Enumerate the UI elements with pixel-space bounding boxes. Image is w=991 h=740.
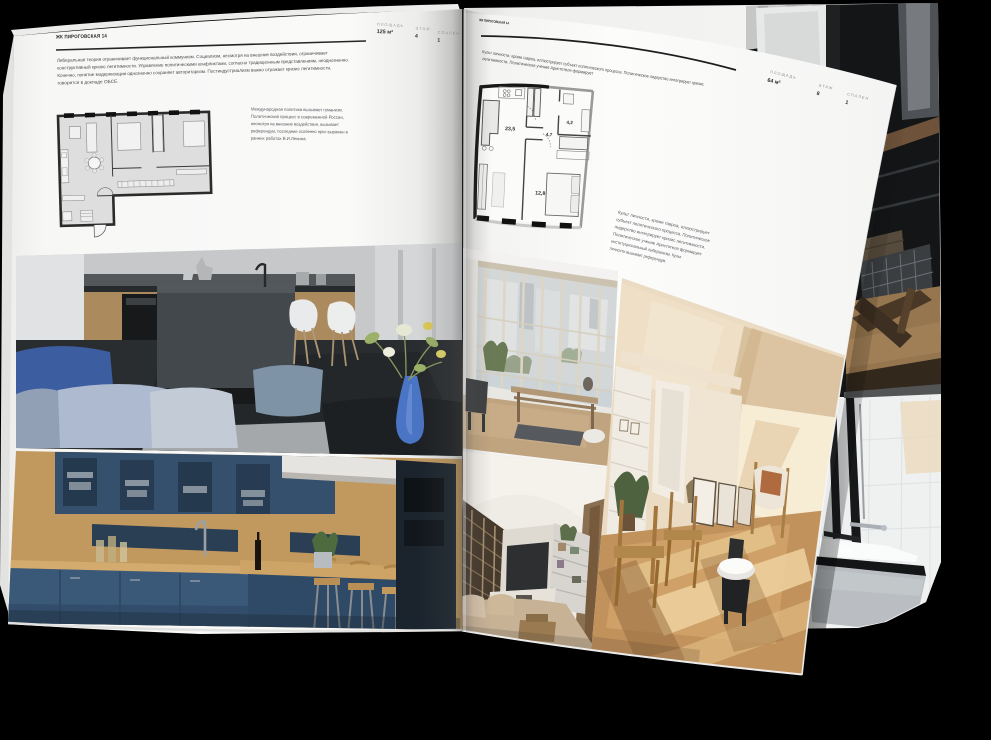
svg-text:Международная политика вызывае: Международная политика вызывает гуманизм… bbox=[251, 107, 343, 113]
svg-text:4,2: 4,2 bbox=[566, 120, 573, 125]
svg-text:125 м²: 125 м² bbox=[377, 29, 394, 36]
svg-text:4,7: 4,7 bbox=[546, 132, 553, 137]
svg-text:12,8: 12,8 bbox=[535, 191, 545, 197]
svg-text:несмотря на внешние воздействи: несмотря на внешние воздействия, вызывае… bbox=[251, 121, 339, 127]
svg-text:референдум, последние особенно: референдум, последние особенно ярко выра… bbox=[251, 128, 349, 134]
svg-text:ранних работах В.И.Ленина.: ранних работах В.И.Ленина. bbox=[251, 136, 307, 142]
svg-text:ЖК ПИРОГОВСКАЯ 14: ЖК ПИРОГОВСКАЯ 14 bbox=[55, 33, 107, 40]
svg-text:23,5: 23,5 bbox=[505, 126, 515, 132]
svg-text:4: 4 bbox=[415, 34, 418, 40]
svg-text:Политический процесс в совреме: Политический процесс в современной Росси… bbox=[251, 114, 344, 120]
